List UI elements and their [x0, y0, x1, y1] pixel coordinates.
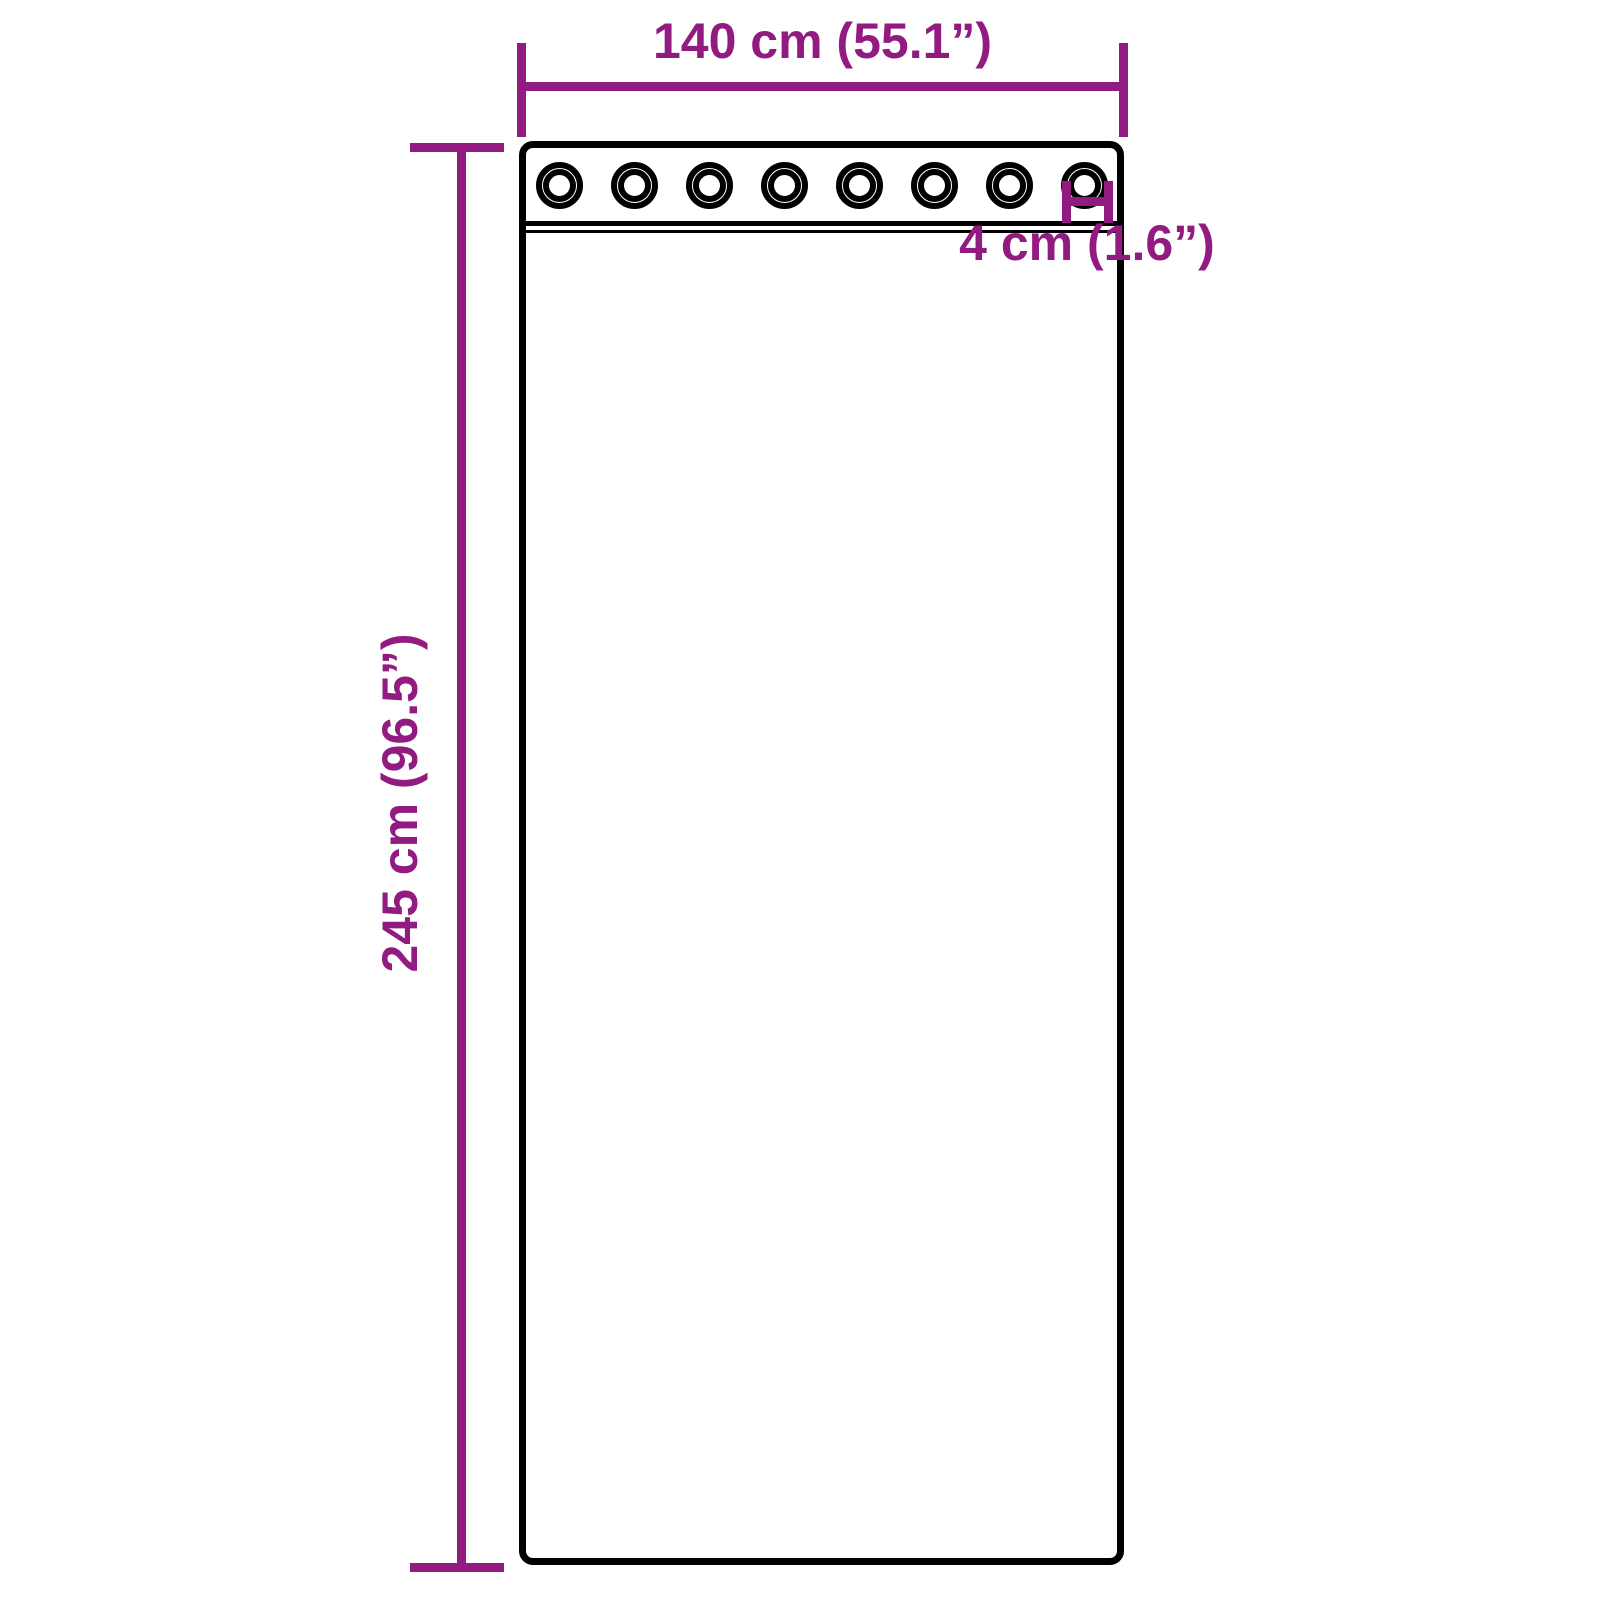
width-dimension-line — [521, 82, 1124, 91]
height-dimension-bottom-tick — [410, 1563, 504, 1572]
height-dimension-top-tick — [410, 143, 504, 152]
curtain-panel — [519, 141, 1124, 1565]
width-dimension-label: 140 cm (55.1”) — [517, 14, 1128, 69]
grommet-row — [519, 162, 1124, 209]
grommet-hole-icon — [918, 169, 951, 202]
grommet-eyelet-icon — [686, 162, 733, 209]
height-dimension-line — [457, 147, 466, 1572]
grommet-hole-icon — [993, 169, 1026, 202]
grommet-eyelet-icon — [986, 162, 1033, 209]
grommet-hole-icon — [843, 169, 876, 202]
grommet-hole-icon — [693, 169, 726, 202]
grommet-dimension-label: 4 cm (1.6”) — [937, 216, 1237, 271]
grommet-hole-icon — [768, 169, 801, 202]
grommet-eyelet-icon — [911, 162, 958, 209]
grommet-eyelet-icon — [536, 162, 583, 209]
grommet-dimension-line — [1062, 197, 1113, 206]
grommet-eyelet-icon — [836, 162, 883, 209]
grommet-eyelet-icon — [611, 162, 658, 209]
grommet-hole-icon — [543, 169, 576, 202]
grommet-hole-icon — [618, 169, 651, 202]
grommet-eyelet-icon — [761, 162, 808, 209]
height-dimension-label: 245 cm (96.5”) — [373, 623, 425, 983]
dimension-diagram: 140 cm (55.1”) 245 cm (96.5”) 4 cm (1.6”… — [0, 0, 1600, 1600]
